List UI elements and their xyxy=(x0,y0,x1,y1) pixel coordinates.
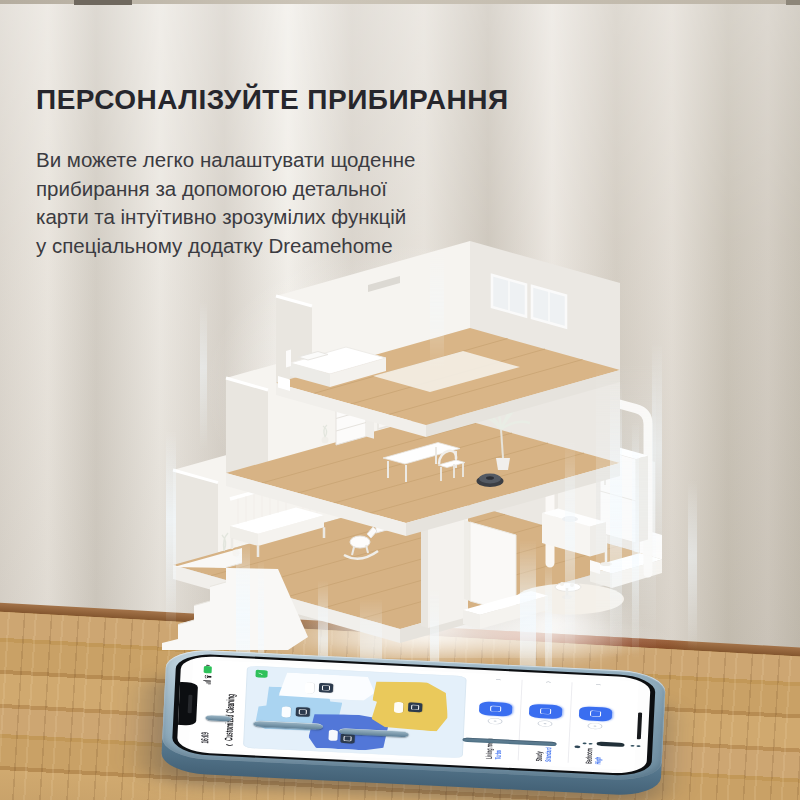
chevron-right-icon: › xyxy=(590,683,604,685)
room-mode-icon[interactable] xyxy=(537,720,552,727)
room-label-pill xyxy=(328,730,338,741)
room-mode-icon[interactable] xyxy=(487,718,502,725)
speaker-hole xyxy=(589,743,593,745)
start-clean-button[interactable] xyxy=(479,701,513,716)
room-robot-chip xyxy=(340,734,354,744)
cleaning-map[interactable]: ✓ xyxy=(243,666,467,759)
chevron-right-icon: › xyxy=(490,678,504,680)
speaker-hole xyxy=(583,742,587,744)
dreamehome-app: 16:09 ‹ Customized Cleaning xyxy=(189,660,639,771)
marketing-slide: { "headline": "ПЕРСОНАЛІЗУЙТЕ ПРИБИРАННЯ… xyxy=(0,0,800,800)
house-cutaway-illustration xyxy=(138,233,668,658)
wifi-icon xyxy=(203,674,211,679)
room-row[interactable]: Living roomTurbo › xyxy=(469,677,522,760)
room-value: High xyxy=(594,731,605,764)
screen-bezel: 16:09 ‹ Customized Cleaning xyxy=(172,653,656,777)
chevron-right-icon: › xyxy=(540,681,554,683)
battery-icon xyxy=(203,666,212,674)
room-mode-icon[interactable] xyxy=(587,723,602,730)
status-time: 16:09 xyxy=(198,732,211,744)
start-clean-button[interactable] xyxy=(579,706,613,721)
app-header: ‹ Customized Cleaning xyxy=(215,661,245,751)
phone-notch xyxy=(177,682,198,726)
room-row[interactable]: StudyStandard › xyxy=(518,680,572,763)
description-line: Ви можете легко налаштувати щоденне xyxy=(36,146,516,175)
ceiling-notch-right xyxy=(786,0,800,5)
description-line: у спеціальному додатку Dreamehome xyxy=(36,232,516,261)
room-robot-chip xyxy=(408,702,422,712)
map-confirm-button[interactable]: ✓ xyxy=(255,670,267,678)
mic-hole xyxy=(574,745,580,748)
smartphone: 16:09 ‹ Customized Cleaning xyxy=(139,622,695,800)
description-line: карти та інтуїтивно зрозумілих функцій xyxy=(36,203,516,232)
back-button[interactable]: ‹ xyxy=(220,743,237,746)
phone-screen: 16:09 ‹ Customized Cleaning xyxy=(177,655,651,774)
room-label-pill xyxy=(305,682,315,693)
room-settings-list: Living roomTurbo › StudyStandard › xyxy=(469,673,622,769)
speaker-hole xyxy=(630,745,634,747)
description-line: прибирання за допомогою детальної xyxy=(36,175,516,204)
description-text: Ви можете легко налаштувати щоденне приб… xyxy=(36,146,516,260)
room-robot-chip xyxy=(319,683,333,693)
speaker-hole xyxy=(636,745,640,747)
ceiling-notch xyxy=(74,0,132,5)
page-title: ПЕРСОНАЛІЗУЙТЕ ПРИБИРАННЯ xyxy=(36,84,636,116)
room-robot-chip xyxy=(296,707,310,717)
room-row[interactable]: BedroomHigh › xyxy=(568,682,622,765)
start-clean-button[interactable] xyxy=(529,704,563,719)
room-label-pill xyxy=(282,706,292,717)
signal-icon xyxy=(203,680,211,684)
room-label-pill xyxy=(394,702,404,713)
